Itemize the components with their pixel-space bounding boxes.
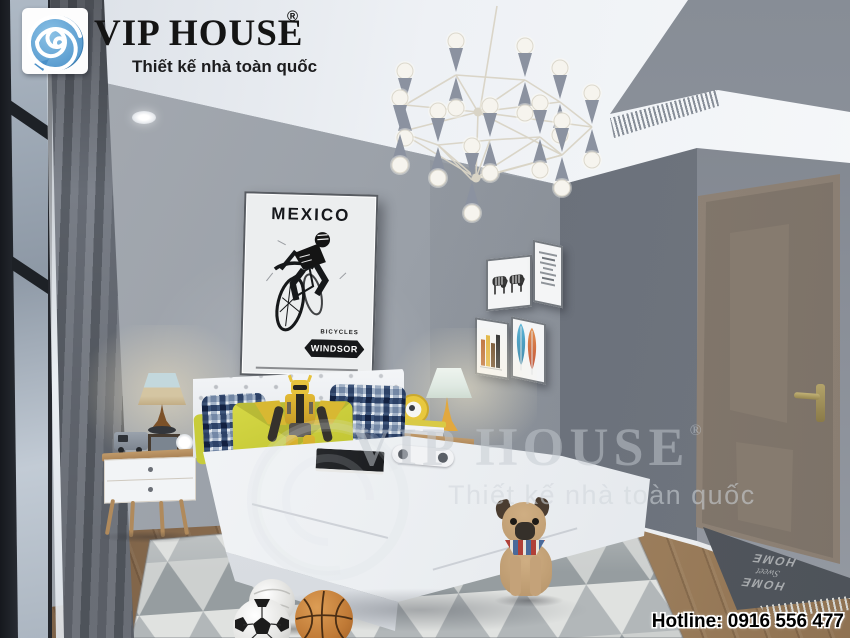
logo-brand-name: VIP HOUSE	[94, 12, 303, 55]
logo-icon-box	[22, 8, 88, 74]
watermark-registered-mark: ®	[690, 422, 707, 439]
watermark-spiral-icon	[0, 0, 850, 638]
watermark-brand-name: VIP HOUSE	[352, 417, 690, 477]
vip-house-logo: VIP HOUSE ® Thiết kế nhà toàn quốc	[0, 0, 330, 90]
watermark-text: VIP HOUSE®	[352, 416, 707, 478]
bedroom-interior-render: MEXICO BICYCLES WINDSOR	[0, 0, 850, 638]
logo-tagline: Thiết kế nhà toàn quốc	[132, 57, 317, 77]
logo-registered-mark: ®	[287, 8, 298, 25]
watermark-tagline: Thiết kế nhà toàn quốc	[448, 480, 756, 511]
nautilus-spiral-logo-icon	[22, 8, 88, 74]
hotline-text: Hotline: 0916 556 477	[652, 611, 844, 633]
